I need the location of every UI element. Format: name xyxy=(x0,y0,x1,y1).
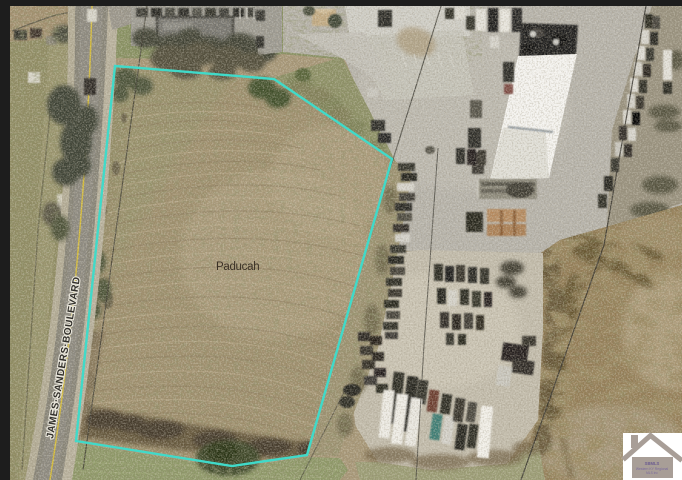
svg-text:MLS Inc: MLS Inc xyxy=(646,471,658,475)
svg-text:Paducah: Paducah xyxy=(216,261,259,273)
svg-text:SBMLS: SBMLS xyxy=(645,461,660,466)
